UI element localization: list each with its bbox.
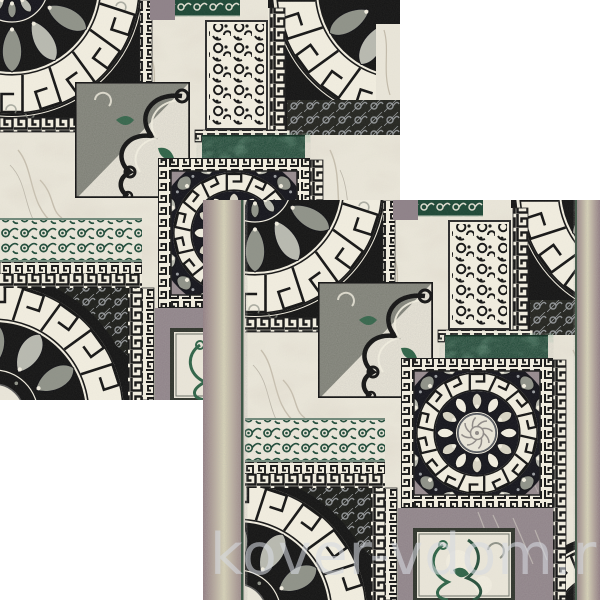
carpet-swatches-image [0, 0, 600, 600]
selvage-strip-right [575, 200, 600, 600]
product-photo: kover-vdom.ru [0, 0, 600, 600]
selvage-strip-left [203, 200, 245, 600]
